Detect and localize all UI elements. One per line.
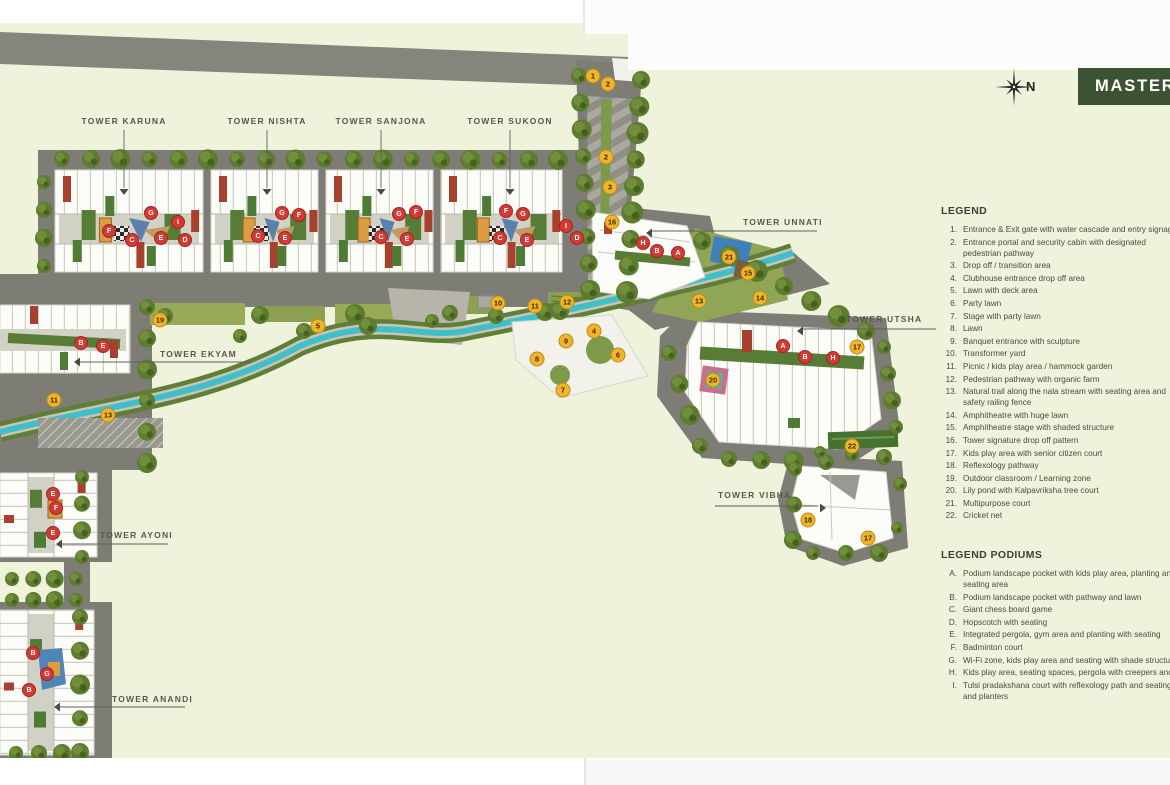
plan-marker-8: 8 — [530, 352, 545, 367]
legend-title: LEGEND — [941, 205, 1170, 217]
plan-marker-22: 22 — [845, 439, 860, 454]
legend-item-number: 13. — [941, 386, 957, 408]
tower-label-ayoni: TOWER AYONI — [100, 530, 173, 540]
legend-item-text: Stage with party lawn — [963, 311, 1041, 322]
legend-panel: LEGEND 1.Entrance & Exit gate with water… — [941, 205, 1170, 523]
legend-podium-item-text: Badminton court — [963, 642, 1023, 653]
legend-podium-item-number: I. — [941, 680, 957, 702]
legend-podium-item: B.Podium landscape pocket with pathway a… — [941, 592, 1170, 603]
legend-item-number: 8. — [941, 323, 957, 334]
plan-marker-F: F — [499, 204, 513, 218]
plan-marker-D: D — [178, 233, 192, 247]
plan-marker-B: B — [798, 350, 812, 364]
legend-item: 15.Amphitheatre stage with shaded struct… — [941, 422, 1170, 433]
plan-marker-17: 17 — [861, 531, 876, 546]
plan-marker-4: 4 — [587, 324, 602, 339]
legend-item-text: Pedestrian pathway with organic farm — [963, 374, 1100, 385]
legend-item: 5.Lawn with deck area — [941, 285, 1170, 296]
legend-item-text: Amphitheatre with huge lawn — [963, 410, 1068, 421]
legend-item-text: Tower signature drop off pattern — [963, 435, 1078, 446]
plan-marker-B: B — [650, 244, 664, 258]
legend-podiums-list: A.Podium landscape pocket with kids play… — [941, 568, 1170, 702]
legend-podiums-panel: LEGEND PODIUMS A.Podium landscape pocket… — [941, 549, 1170, 703]
plan-marker-11: 11 — [528, 299, 543, 314]
tower-label-utsha: TOWER UTSHA — [846, 314, 922, 324]
compass-north-label: N — [1026, 79, 1035, 94]
legend-podium-item-text: Giant chess board game — [963, 604, 1052, 615]
legend-item-text: Lily pond with Kalpavriksha tree court — [963, 485, 1099, 496]
legend-item: 11.Picnic / kids play area / hammock gar… — [941, 361, 1170, 372]
legend-podiums-title: LEGEND PODIUMS — [941, 549, 1170, 561]
plan-marker-E: E — [278, 231, 292, 245]
plan-marker-G: G — [516, 207, 530, 221]
legend-podium-item: I.Tulsi pradakshana court with reflexolo… — [941, 680, 1170, 702]
legend-item: 14.Amphitheatre with huge lawn — [941, 410, 1170, 421]
legend-item-number: 20. — [941, 485, 957, 496]
legend-item: 20.Lily pond with Kalpavriksha tree cour… — [941, 485, 1170, 496]
legend-item-number: 7. — [941, 311, 957, 322]
legend-item: 6.Party lawn — [941, 298, 1170, 309]
plan-marker-2: 2 — [601, 77, 616, 92]
plan-marker-E: E — [46, 487, 60, 501]
legend-podium-item-text: Podium landscape pocket with pathway and… — [963, 592, 1141, 603]
plan-marker-5: 5 — [311, 319, 326, 334]
legend-item-text: Multipurpose court — [963, 498, 1030, 509]
plan-marker-E: E — [46, 526, 60, 540]
plan-marker-G: G — [275, 206, 289, 220]
legend-item: 8.Lawn — [941, 323, 1170, 334]
legend-item-text: Outdoor classroom / Learning zone — [963, 473, 1091, 484]
legend-item-number: 15. — [941, 422, 957, 433]
legend-item: 13.Natural trail along the nala stream w… — [941, 386, 1170, 408]
legend-item-number: 22. — [941, 510, 957, 521]
legend-item: 7.Stage with party lawn — [941, 311, 1170, 322]
legend-podium-item-text: Wi-Fi zone, kids play area and seating w… — [963, 655, 1170, 666]
legend-podium-item-text: Hopscotch with seating — [963, 617, 1047, 628]
tower-label-unnati: TOWER UNNATI — [743, 217, 823, 227]
plan-marker-12: 12 — [560, 295, 575, 310]
legend-item-number: 17. — [941, 448, 957, 459]
plan-marker-A: A — [776, 339, 790, 353]
legend-item-text: Entrance portal and security cabin with … — [963, 237, 1146, 259]
legend-item-number: 21. — [941, 498, 957, 509]
plan-marker-6: 6 — [611, 348, 626, 363]
legend-item-text: Lawn with deck area — [963, 285, 1038, 296]
legend-item: 9.Banquet entrance with sculpture — [941, 336, 1170, 347]
compass-rose-icon — [974, 61, 1054, 113]
plan-marker-F: F — [409, 205, 423, 219]
legend-item-number: 11. — [941, 361, 957, 372]
plan-marker-H: H — [826, 351, 840, 365]
plan-marker-F: F — [49, 501, 63, 515]
plan-marker-G: G — [392, 207, 406, 221]
plan-marker-C: C — [125, 233, 139, 247]
plan-marker-B: B — [22, 683, 36, 697]
legend-podium-item-text: Podium landscape pocket with kids play a… — [963, 568, 1170, 590]
legend-item-text: Clubhouse entrance drop off area — [963, 273, 1085, 284]
master-plan-page: { "page": { "banner_label": "MASTER PLAN… — [0, 0, 1170, 785]
legend-podium-item-number: H. — [941, 667, 957, 678]
legend-podium-item: G.Wi-Fi zone, kids play area and seating… — [941, 655, 1170, 666]
legend-podium-item: C.Giant chess board game — [941, 604, 1170, 615]
page-seam — [583, 0, 585, 34]
plan-marker-E: E — [96, 339, 110, 353]
legend-item-text: Party lawn — [963, 298, 1001, 309]
plan-marker-A: A — [671, 246, 685, 260]
legend-item-text: Natural trail along the nala stream with… — [963, 386, 1166, 408]
plan-marker-D: D — [570, 231, 584, 245]
plan-marker-15: 15 — [741, 266, 756, 281]
legend-item: 19.Outdoor classroom / Learning zone — [941, 473, 1170, 484]
plan-marker-F: F — [102, 224, 116, 238]
legend-item-number: 12. — [941, 374, 957, 385]
legend-item-number: 9. — [941, 336, 957, 347]
plan-marker-1: 1 — [586, 69, 601, 84]
plan-marker-B: B — [26, 646, 40, 660]
legend-podium-item-number: E. — [941, 629, 957, 640]
legend-podium-item: A.Podium landscape pocket with kids play… — [941, 568, 1170, 590]
legend-item: 22.Cricket net — [941, 510, 1170, 521]
plan-marker-10: 10 — [491, 296, 506, 311]
tower-label-anandi: TOWER ANANDI — [112, 694, 193, 704]
plan-marker-B: B — [74, 336, 88, 350]
plan-marker-2: 2 — [599, 150, 614, 165]
plan-marker-21: 21 — [722, 250, 737, 265]
legend-item-number: 2. — [941, 237, 957, 259]
plan-marker-H: H — [636, 236, 650, 250]
tower-label-sukoon: TOWER SUKOON — [467, 116, 553, 126]
page-margin — [584, 0, 632, 34]
legend-item: 10.Transformer yard — [941, 348, 1170, 359]
legend-podium-item: D.Hopscotch with seating — [941, 617, 1170, 628]
legend-item-number: 18. — [941, 460, 957, 471]
legend-podium-item-number: D. — [941, 617, 957, 628]
legend-item-text: Lawn — [963, 323, 983, 334]
plan-marker-G: G — [144, 206, 158, 220]
legend-podium-item-text: Integrated pergola, gym area and plantin… — [963, 629, 1161, 640]
legend-list: 1.Entrance & Exit gate with water cascad… — [941, 224, 1170, 521]
legend-item-text: Kids play area with senior citizen court — [963, 448, 1102, 459]
tower-label-nishta: TOWER NISHTA — [227, 116, 306, 126]
legend-item: 3.Drop off / transition area — [941, 260, 1170, 271]
plan-marker-I: I — [171, 215, 185, 229]
tower-label-vibha: TOWER VIBHA — [718, 490, 792, 500]
plan-marker-3: 3 — [603, 180, 618, 195]
legend-item: 12.Pedestrian pathway with organic farm — [941, 374, 1170, 385]
legend-item: 16.Tower signature drop off pattern — [941, 435, 1170, 446]
plan-marker-18: 18 — [801, 513, 816, 528]
legend-item-number: 5. — [941, 285, 957, 296]
legend-podium-item-text: Kids play area, seating spaces, pergola … — [963, 667, 1170, 678]
legend-item-number: 4. — [941, 273, 957, 284]
legend-item: 21.Multipurpose court — [941, 498, 1170, 509]
plan-marker-E: E — [520, 233, 534, 247]
page-margin — [628, 0, 1170, 70]
legend-item-number: 3. — [941, 260, 957, 271]
legend-podium-item-number: G. — [941, 655, 957, 666]
legend-item-text: Amphitheatre stage with shaded structure — [963, 422, 1114, 433]
plan-marker-19: 19 — [153, 313, 168, 328]
plan-marker-13: 13 — [101, 408, 116, 423]
legend-item: 17.Kids play area with senior citizen co… — [941, 448, 1170, 459]
legend-item-text: Banquet entrance with sculpture — [963, 336, 1080, 347]
legend-item: 4.Clubhouse entrance drop off area — [941, 273, 1170, 284]
plan-marker-17: 17 — [850, 340, 865, 355]
plan-marker-11: 11 — [47, 393, 62, 408]
plan-marker-C: C — [251, 229, 265, 243]
compass: N — [974, 61, 1054, 113]
plan-marker-16: 16 — [605, 215, 620, 230]
legend-item-text: Cricket net — [963, 510, 1002, 521]
legend-item-text: Drop off / transition area — [963, 260, 1051, 271]
plan-marker-C: C — [374, 230, 388, 244]
plan-marker-9: 9 — [559, 334, 574, 349]
legend-item-number: 16. — [941, 435, 957, 446]
legend-item-text: Reflexology pathway — [963, 460, 1039, 471]
legend-podium-item-number: C. — [941, 604, 957, 615]
tower-label-ekyam: TOWER EKYAM — [160, 349, 237, 359]
tower-label-karuna: TOWER KARUNA — [81, 116, 166, 126]
plan-marker-E: E — [400, 232, 414, 246]
legend-item: 1.Entrance & Exit gate with water cascad… — [941, 224, 1170, 235]
plan-marker-C: C — [493, 231, 507, 245]
plan-marker-7: 7 — [556, 383, 571, 398]
legend-item-number: 19. — [941, 473, 957, 484]
legend-item-text: Transformer yard — [963, 348, 1025, 359]
plan-marker-20: 20 — [706, 373, 721, 388]
legend-podium-item-number: B. — [941, 592, 957, 603]
plan-marker-E: E — [154, 231, 168, 245]
plan-marker-I: I — [559, 219, 573, 233]
legend-item-number: 6. — [941, 298, 957, 309]
legend-podium-item: H.Kids play area, seating spaces, pergol… — [941, 667, 1170, 678]
master-plan-banner: MASTER PLAN — [1078, 68, 1170, 105]
legend-podium-item-number: A. — [941, 568, 957, 590]
legend-podium-item: E.Integrated pergola, gym area and plant… — [941, 629, 1170, 640]
legend-podium-item-text: Tulsi pradakshana court with reflexology… — [963, 680, 1170, 702]
legend-item-text: Picnic / kids play area / hammock garden — [963, 361, 1112, 372]
legend-item-number: 14. — [941, 410, 957, 421]
legend-item-text: Entrance & Exit gate with water cascade … — [963, 224, 1170, 235]
legend-item: 2.Entrance portal and security cabin wit… — [941, 237, 1170, 259]
tower-label-sanjona: TOWER SANJONA — [335, 116, 426, 126]
legend-podium-item: F.Badminton court — [941, 642, 1170, 653]
plan-marker-13: 13 — [692, 294, 707, 309]
plan-marker-F: F — [292, 208, 306, 222]
legend-item-number: 10. — [941, 348, 957, 359]
legend-item-number: 1. — [941, 224, 957, 235]
plan-marker-G: G — [40, 667, 54, 681]
plan-marker-14: 14 — [753, 291, 768, 306]
page-margin — [586, 760, 1170, 785]
legend-item: 18.Reflexology pathway — [941, 460, 1170, 471]
legend-podium-item-number: F. — [941, 642, 957, 653]
